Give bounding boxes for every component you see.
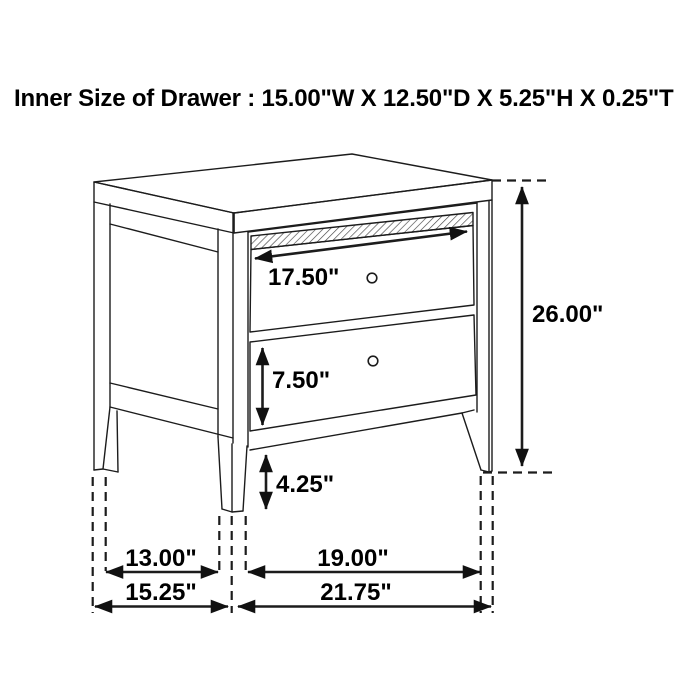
left-side-panel — [94, 202, 233, 470]
dim-label-leg-span-side: 13.00" — [125, 545, 196, 572]
dim-label-overall-width: 21.75" — [320, 579, 391, 606]
dim-label-overall-depth: 15.25" — [125, 579, 196, 606]
furniture-dimension-diagram: Inner Size of Drawer : 15.00"W X 12.50"D… — [0, 0, 700, 700]
page-title: Inner Size of Drawer : 15.00"W X 12.50"D… — [14, 85, 674, 112]
dimension-diagram-page: Inner Size of Drawer : 15.00"W X 12.50"D… — [0, 0, 700, 700]
bottom-drawer-knob — [368, 356, 378, 366]
dim-label-overall-height: 26.00" — [532, 301, 603, 328]
front-corner-leg — [218, 437, 222, 509]
nightstand-drawing — [94, 154, 492, 512]
top-drawer-knob — [367, 273, 377, 283]
dim-label-drawer-front-height: 7.50" — [272, 367, 330, 394]
tabletop-surface — [94, 154, 492, 213]
dim-label-leg-span-front: 19.00" — [317, 545, 388, 572]
labels: Inner Size of Drawer : 15.00"W X 12.50"D… — [14, 85, 674, 606]
dimension-arrows — [95, 187, 522, 607]
dim-label-leg-height: 4.25" — [276, 471, 334, 498]
dim-label-top-drawer-width: 17.50" — [268, 264, 339, 291]
left-leg — [103, 407, 110, 469]
right-leg — [462, 413, 481, 470]
